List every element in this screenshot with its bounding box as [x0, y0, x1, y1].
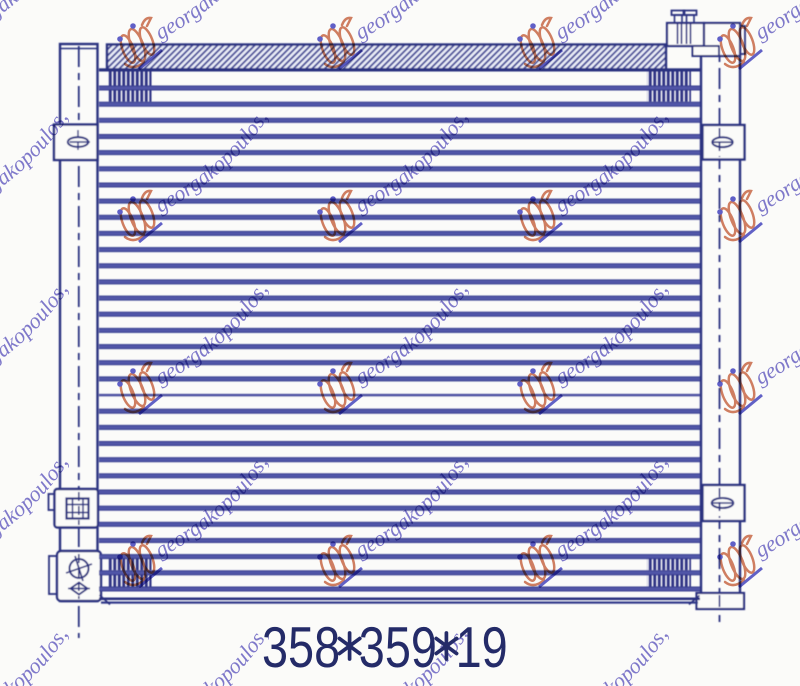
svg-text:359: 359 — [359, 617, 437, 681]
svg-text:358: 358 — [262, 617, 340, 681]
svg-text:19: 19 — [456, 617, 508, 681]
